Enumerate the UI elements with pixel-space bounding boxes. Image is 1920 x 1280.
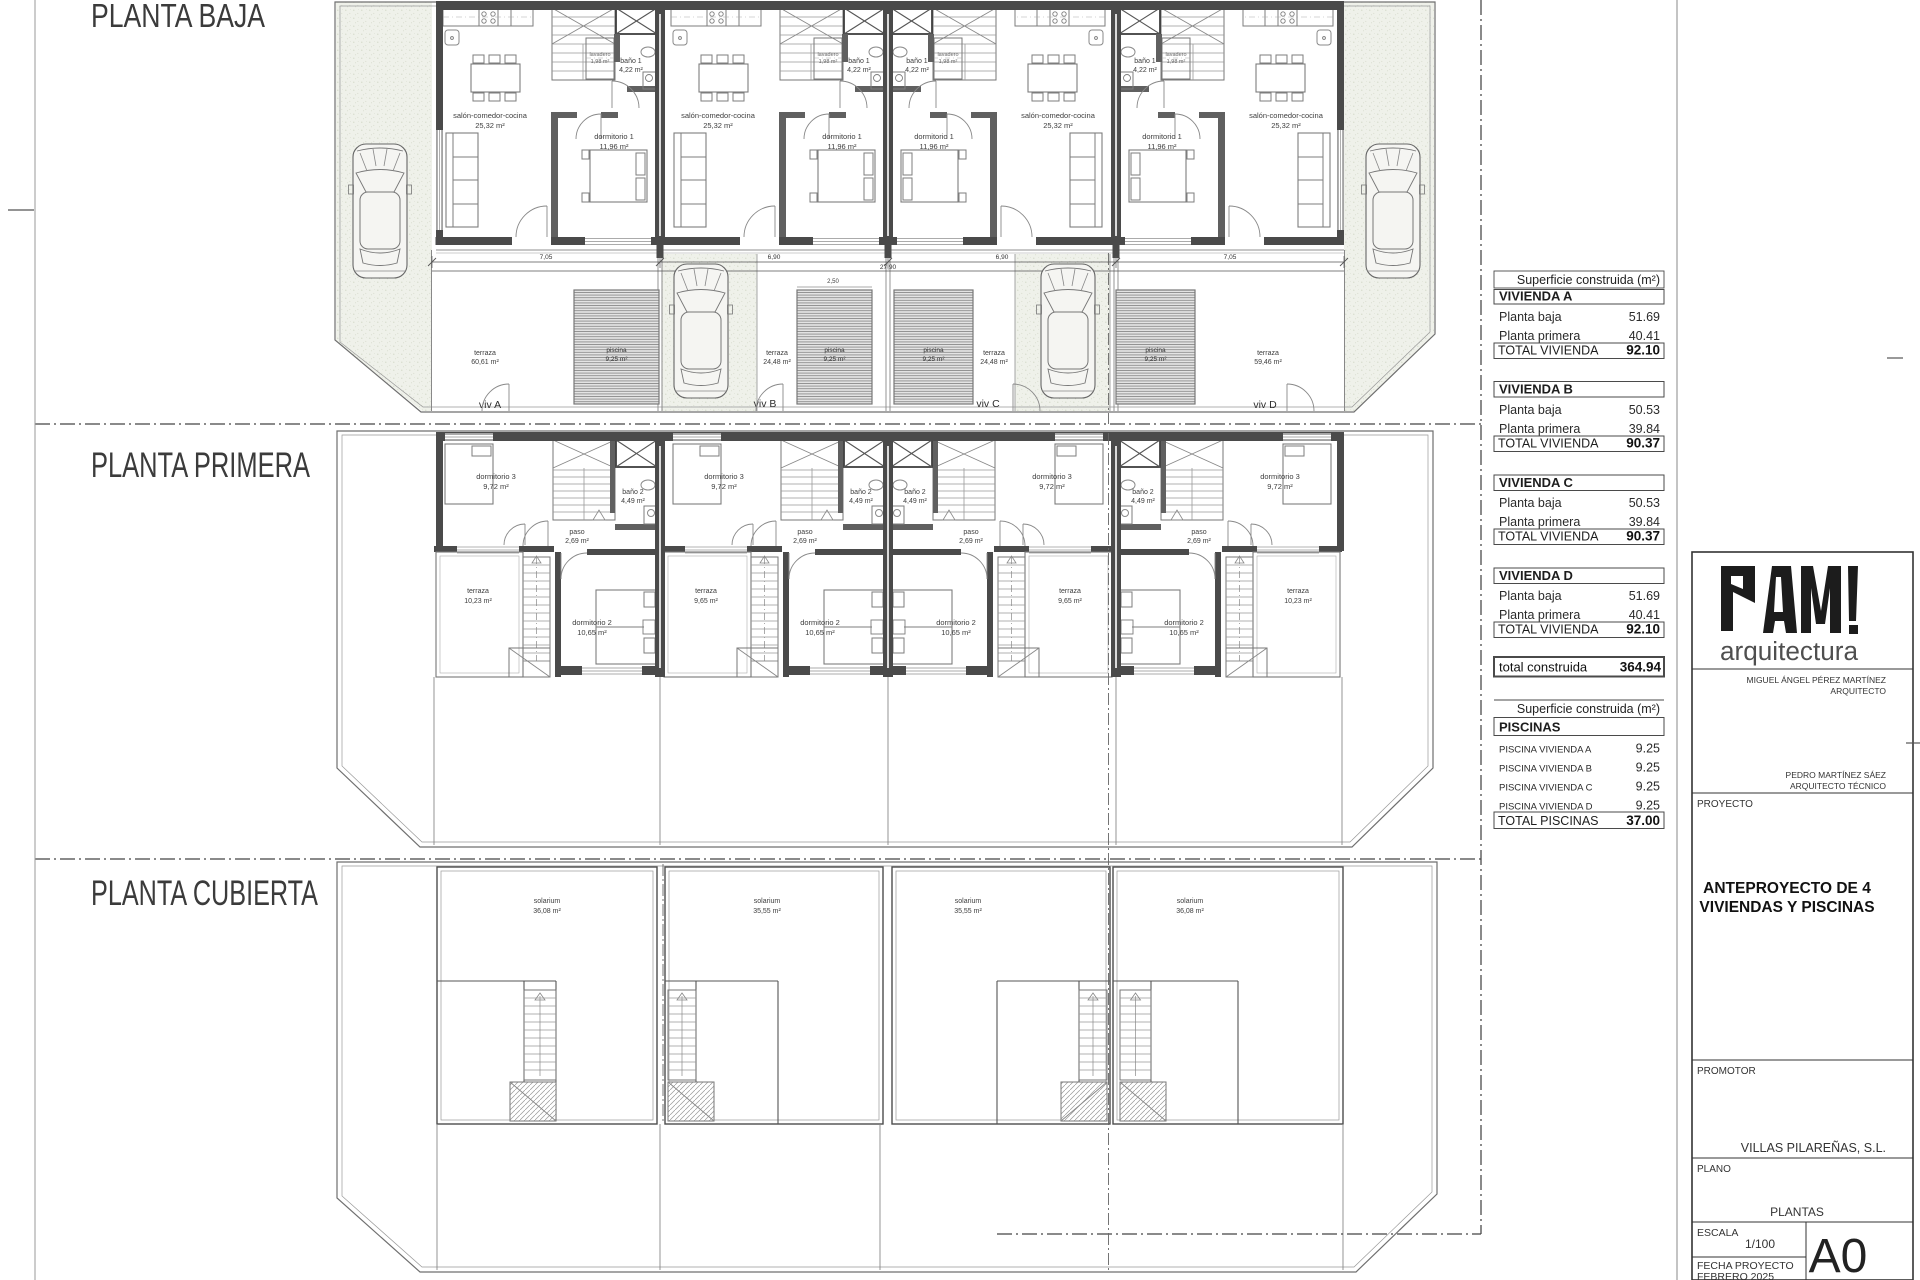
svg-text:25,32 m²: 25,32 m² bbox=[475, 121, 505, 130]
svg-text:39.84: 39.84 bbox=[1629, 422, 1660, 436]
svg-text:9.25: 9.25 bbox=[1636, 761, 1660, 775]
svg-text:2,69 m²: 2,69 m² bbox=[565, 538, 589, 545]
svg-text:terraza: terraza bbox=[695, 588, 717, 595]
svg-text:dormitorio 3: dormitorio 3 bbox=[704, 472, 744, 481]
svg-text:59,46 m²: 59,46 m² bbox=[1254, 359, 1282, 366]
svg-text:PISCINAS: PISCINAS bbox=[1499, 720, 1561, 735]
svg-text:PLANO: PLANO bbox=[1697, 1164, 1731, 1175]
svg-text:36,08 m²: 36,08 m² bbox=[1176, 908, 1204, 915]
svg-text:Planta primera: Planta primera bbox=[1499, 329, 1580, 343]
svg-text:10,65 m²: 10,65 m² bbox=[1169, 628, 1199, 637]
svg-text:PISCINA VIVIENDA C: PISCINA VIVIENDA C bbox=[1499, 783, 1593, 794]
svg-text:9,72 m²: 9,72 m² bbox=[711, 482, 737, 491]
svg-text:lavadero: lavadero bbox=[1165, 52, 1186, 58]
svg-text:salón-comedor-cocina: salón-comedor-cocina bbox=[1021, 111, 1096, 120]
svg-text:27,90: 27,90 bbox=[880, 264, 897, 271]
svg-text:9.25: 9.25 bbox=[1636, 742, 1660, 756]
svg-text:1,98 m²: 1,98 m² bbox=[939, 59, 958, 65]
svg-text:364.94: 364.94 bbox=[1620, 660, 1662, 675]
svg-text:24,48 m²: 24,48 m² bbox=[763, 359, 791, 366]
svg-text:7,05: 7,05 bbox=[1224, 254, 1237, 261]
svg-text:4,49 m²: 4,49 m² bbox=[1131, 498, 1155, 505]
svg-text:1,98 m²: 1,98 m² bbox=[819, 59, 838, 65]
svg-text:60,61 m²: 60,61 m² bbox=[471, 359, 499, 366]
svg-text:37.00: 37.00 bbox=[1626, 813, 1660, 828]
svg-text:Planta baja: Planta baja bbox=[1499, 403, 1562, 417]
svg-text:salón-comedor-cocina: salón-comedor-cocina bbox=[681, 111, 756, 120]
svg-text:baño 2: baño 2 bbox=[850, 489, 872, 496]
svg-text:lavadero: lavadero bbox=[817, 52, 838, 58]
svg-text:2,69 m²: 2,69 m² bbox=[793, 538, 817, 545]
svg-text:solarium: solarium bbox=[1177, 898, 1204, 905]
svg-text:90.37: 90.37 bbox=[1626, 436, 1660, 451]
svg-text:4,49 m²: 4,49 m² bbox=[849, 498, 873, 505]
svg-text:9,25 m²: 9,25 m² bbox=[922, 356, 945, 363]
svg-text:10,65 m²: 10,65 m² bbox=[577, 628, 607, 637]
svg-text:terraza: terraza bbox=[1257, 350, 1279, 357]
svg-text:10,23 m²: 10,23 m² bbox=[464, 598, 492, 605]
svg-text:baño 1: baño 1 bbox=[906, 58, 928, 65]
svg-text:terraza: terraza bbox=[983, 350, 1005, 357]
svg-text:11,96 m²: 11,96 m² bbox=[919, 142, 949, 151]
svg-text:viv C: viv C bbox=[976, 398, 1000, 410]
svg-text:4,49 m²: 4,49 m² bbox=[621, 498, 645, 505]
svg-text:ARQUITECTO: ARQUITECTO bbox=[1830, 686, 1886, 696]
svg-text:9.25: 9.25 bbox=[1636, 799, 1660, 813]
svg-text:TOTAL VIVIENDA: TOTAL VIVIENDA bbox=[1498, 530, 1599, 544]
svg-text:A0: A0 bbox=[1809, 1230, 1868, 1280]
svg-text:ARQUITECTO TÉCNICO: ARQUITECTO TÉCNICO bbox=[1790, 781, 1886, 791]
svg-text:Superficie construida (m²): Superficie construida (m²) bbox=[1517, 702, 1660, 716]
svg-text:solarium: solarium bbox=[534, 898, 561, 905]
svg-text:dormitorio 2: dormitorio 2 bbox=[572, 618, 612, 627]
svg-text:92.10: 92.10 bbox=[1626, 343, 1660, 358]
svg-text:90.37: 90.37 bbox=[1626, 529, 1660, 544]
svg-text:50.53: 50.53 bbox=[1629, 496, 1660, 510]
svg-text:PISCINA VIVIENDA A: PISCINA VIVIENDA A bbox=[1499, 745, 1592, 756]
svg-text:11,96 m²: 11,96 m² bbox=[1147, 142, 1177, 151]
svg-text:VIVIENDA A: VIVIENDA A bbox=[1499, 289, 1573, 304]
svg-text:1/100: 1/100 bbox=[1745, 1237, 1775, 1251]
svg-text:2,69 m²: 2,69 m² bbox=[1187, 538, 1211, 545]
svg-text:paso: paso bbox=[797, 529, 812, 536]
svg-text:solarium: solarium bbox=[955, 898, 982, 905]
svg-text:ANTEPROYECTO DE 4: ANTEPROYECTO DE 4 bbox=[1703, 880, 1871, 897]
svg-text:2,50: 2,50 bbox=[827, 279, 839, 285]
svg-text:baño 2: baño 2 bbox=[904, 489, 926, 496]
svg-text:dormitorio 2: dormitorio 2 bbox=[800, 618, 840, 627]
svg-text:TOTAL PISCINAS: TOTAL PISCINAS bbox=[1498, 814, 1599, 828]
svg-text:MIGUEL ÁNGEL PÉREZ MARTÍNEZ: MIGUEL ÁNGEL PÉREZ MARTÍNEZ bbox=[1747, 675, 1887, 685]
svg-text:total construida: total construida bbox=[1499, 660, 1588, 675]
svg-text:1,98 m²: 1,98 m² bbox=[1167, 59, 1186, 65]
svg-text:2,69 m²: 2,69 m² bbox=[959, 538, 983, 545]
svg-text:9,25 m²: 9,25 m² bbox=[1144, 356, 1167, 363]
svg-text:25,32 m²: 25,32 m² bbox=[1043, 121, 1073, 130]
svg-text:ESCALA: ESCALA bbox=[1697, 1227, 1738, 1239]
svg-text:7,05: 7,05 bbox=[540, 254, 553, 261]
svg-text:TOTAL VIVIENDA: TOTAL VIVIENDA bbox=[1498, 344, 1599, 358]
svg-text:salón-comedor-cocina: salón-comedor-cocina bbox=[453, 111, 528, 120]
svg-text:PEDRO MARTÍNEZ SÁEZ: PEDRO MARTÍNEZ SÁEZ bbox=[1786, 770, 1886, 780]
svg-text:baño 2: baño 2 bbox=[622, 489, 644, 496]
svg-text:4,22 m²: 4,22 m² bbox=[905, 67, 929, 74]
svg-text:6,90: 6,90 bbox=[996, 254, 1009, 261]
svg-text:40.41: 40.41 bbox=[1629, 329, 1660, 343]
svg-text:terraza: terraza bbox=[1059, 588, 1081, 595]
svg-text:Planta primera: Planta primera bbox=[1499, 422, 1580, 436]
svg-text:9,65 m²: 9,65 m² bbox=[694, 598, 718, 605]
svg-text:9,25 m²: 9,25 m² bbox=[823, 356, 846, 363]
svg-text:24,48 m²: 24,48 m² bbox=[980, 359, 1008, 366]
svg-text:PLANTA BAJA: PLANTA BAJA bbox=[91, 0, 265, 34]
svg-text:35,55 m²: 35,55 m² bbox=[753, 908, 781, 915]
svg-text:terraza: terraza bbox=[467, 588, 489, 595]
svg-text:piscina: piscina bbox=[824, 347, 845, 354]
svg-text:51.69: 51.69 bbox=[1629, 589, 1660, 603]
svg-text:9,25 m²: 9,25 m² bbox=[605, 356, 628, 363]
svg-text:Planta primera: Planta primera bbox=[1499, 608, 1580, 622]
svg-text:PROYECTO: PROYECTO bbox=[1697, 799, 1753, 810]
svg-text:35,55 m²: 35,55 m² bbox=[954, 908, 982, 915]
svg-text:51.69: 51.69 bbox=[1629, 310, 1660, 324]
svg-text:dormitorio 3: dormitorio 3 bbox=[1260, 472, 1300, 481]
svg-text:VILLAS PILAREÑAS, S.L.: VILLAS PILAREÑAS, S.L. bbox=[1741, 1141, 1886, 1155]
svg-text:VIVIENDA D: VIVIENDA D bbox=[1499, 568, 1573, 583]
svg-text:PLANTAS: PLANTAS bbox=[1770, 1205, 1824, 1219]
svg-text:lavadero: lavadero bbox=[937, 52, 958, 58]
svg-text:salón-comedor-cocina: salón-comedor-cocina bbox=[1249, 111, 1324, 120]
svg-text:4,22 m²: 4,22 m² bbox=[619, 67, 643, 74]
svg-text:paso: paso bbox=[963, 529, 978, 536]
svg-text:9,72 m²: 9,72 m² bbox=[483, 482, 509, 491]
svg-text:PLANTA CUBIERTA: PLANTA CUBIERTA bbox=[91, 874, 318, 913]
svg-text:piscina: piscina bbox=[606, 347, 627, 354]
svg-text:4,22 m²: 4,22 m² bbox=[1133, 67, 1157, 74]
svg-text:Planta primera: Planta primera bbox=[1499, 515, 1580, 529]
svg-text:baño 1: baño 1 bbox=[1134, 58, 1156, 65]
svg-text:9.25: 9.25 bbox=[1636, 780, 1660, 794]
svg-text:Planta baja: Planta baja bbox=[1499, 589, 1562, 603]
svg-text:dormitorio 3: dormitorio 3 bbox=[1032, 472, 1072, 481]
svg-text:9,65 m²: 9,65 m² bbox=[1058, 598, 1082, 605]
svg-text:PROMOTOR: PROMOTOR bbox=[1697, 1066, 1756, 1077]
svg-text:10,65 m²: 10,65 m² bbox=[805, 628, 835, 637]
svg-text:dormitorio 3: dormitorio 3 bbox=[476, 472, 516, 481]
svg-text:piscina: piscina bbox=[1145, 347, 1166, 354]
svg-text:VIVIENDAS Y PISCINAS: VIVIENDAS Y PISCINAS bbox=[1699, 899, 1874, 916]
svg-text:terraza: terraza bbox=[474, 350, 496, 357]
svg-text:lavadero: lavadero bbox=[589, 52, 610, 58]
svg-text:baño 2: baño 2 bbox=[1132, 489, 1154, 496]
svg-text:Superficie construida (m²): Superficie construida (m²) bbox=[1517, 273, 1660, 287]
svg-text:dormitorio 1: dormitorio 1 bbox=[594, 132, 634, 141]
svg-text:solarium: solarium bbox=[754, 898, 781, 905]
svg-text:terraza: terraza bbox=[1287, 588, 1309, 595]
svg-text:dormitorio 2: dormitorio 2 bbox=[936, 618, 976, 627]
svg-text:dormitorio 1: dormitorio 1 bbox=[1142, 132, 1182, 141]
svg-text:paso: paso bbox=[1191, 529, 1206, 536]
svg-text:dormitorio 1: dormitorio 1 bbox=[822, 132, 862, 141]
svg-text:4,49 m²: 4,49 m² bbox=[903, 498, 927, 505]
svg-text:PLANTA PRIMERA: PLANTA PRIMERA bbox=[91, 446, 310, 485]
svg-text:PISCINA VIVIENDA D: PISCINA VIVIENDA D bbox=[1499, 802, 1593, 813]
svg-text:FEBRERO 2025: FEBRERO 2025 bbox=[1697, 1271, 1774, 1280]
svg-text:25,32 m²: 25,32 m² bbox=[703, 121, 733, 130]
svg-text:25,32 m²: 25,32 m² bbox=[1271, 121, 1301, 130]
svg-text:40.41: 40.41 bbox=[1629, 608, 1660, 622]
svg-text:50.53: 50.53 bbox=[1629, 403, 1660, 417]
svg-text:11,96 m²: 11,96 m² bbox=[599, 142, 629, 151]
svg-text:36,08 m²: 36,08 m² bbox=[533, 908, 561, 915]
svg-text:9,72 m²: 9,72 m² bbox=[1267, 482, 1293, 491]
svg-text:baño 1: baño 1 bbox=[848, 58, 870, 65]
svg-text:39.84: 39.84 bbox=[1629, 515, 1660, 529]
svg-text:dormitorio 2: dormitorio 2 bbox=[1164, 618, 1204, 627]
svg-text:11,96 m²: 11,96 m² bbox=[827, 142, 857, 151]
svg-text:10,65 m²: 10,65 m² bbox=[941, 628, 971, 637]
svg-text:Planta baja: Planta baja bbox=[1499, 310, 1562, 324]
svg-text:terraza: terraza bbox=[766, 350, 788, 357]
svg-text:paso: paso bbox=[569, 529, 584, 536]
svg-text:9,72 m²: 9,72 m² bbox=[1039, 482, 1065, 491]
svg-text:TOTAL VIVIENDA: TOTAL VIVIENDA bbox=[1498, 437, 1599, 451]
svg-text:6,90: 6,90 bbox=[768, 254, 781, 261]
svg-text:viv D: viv D bbox=[1253, 399, 1277, 411]
svg-text:4,22 m²: 4,22 m² bbox=[847, 67, 871, 74]
svg-text:VIVIENDA C: VIVIENDA C bbox=[1499, 475, 1574, 490]
svg-text:VIVIENDA B: VIVIENDA B bbox=[1499, 382, 1573, 397]
svg-text:baño 1: baño 1 bbox=[620, 58, 642, 65]
svg-text:TOTAL VIVIENDA: TOTAL VIVIENDA bbox=[1498, 623, 1599, 637]
svg-text:92.10: 92.10 bbox=[1626, 622, 1660, 637]
svg-text:Planta baja: Planta baja bbox=[1499, 496, 1562, 510]
svg-text:piscina: piscina bbox=[923, 347, 944, 354]
svg-text:PISCINA VIVIENDA B: PISCINA VIVIENDA B bbox=[1499, 764, 1592, 775]
svg-text:dormitorio 1: dormitorio 1 bbox=[914, 132, 954, 141]
svg-text:1,98 m²: 1,98 m² bbox=[591, 59, 610, 65]
svg-text:10,23 m²: 10,23 m² bbox=[1284, 598, 1312, 605]
svg-text:arquitectura: arquitectura bbox=[1720, 638, 1859, 666]
